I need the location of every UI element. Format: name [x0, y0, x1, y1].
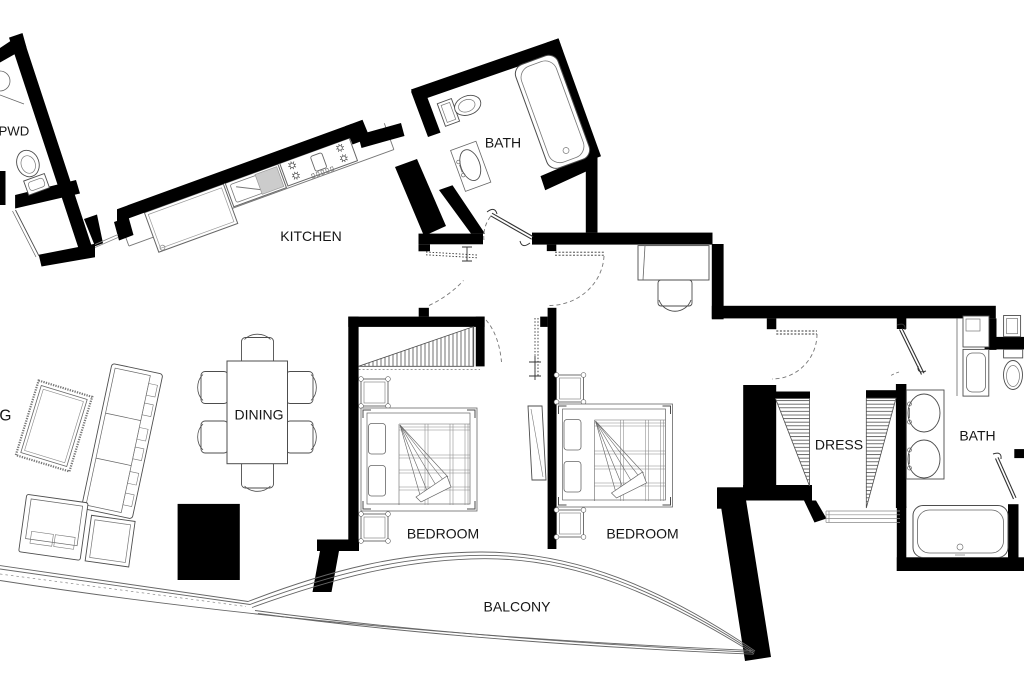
svg-text:BEDROOM: BEDROOM	[407, 526, 479, 542]
svg-text:PWD: PWD	[0, 124, 29, 139]
svg-text:DRESS: DRESS	[815, 437, 863, 453]
svg-text:LIVING: LIVING	[0, 408, 12, 425]
svg-text:BATH: BATH	[959, 428, 995, 444]
svg-text:BALCONY: BALCONY	[484, 599, 552, 615]
svg-text:BATH: BATH	[485, 135, 521, 151]
svg-text:DINING: DINING	[235, 407, 284, 423]
svg-text:KITCHEN: KITCHEN	[280, 228, 341, 244]
svg-text:BEDROOM: BEDROOM	[606, 526, 678, 542]
